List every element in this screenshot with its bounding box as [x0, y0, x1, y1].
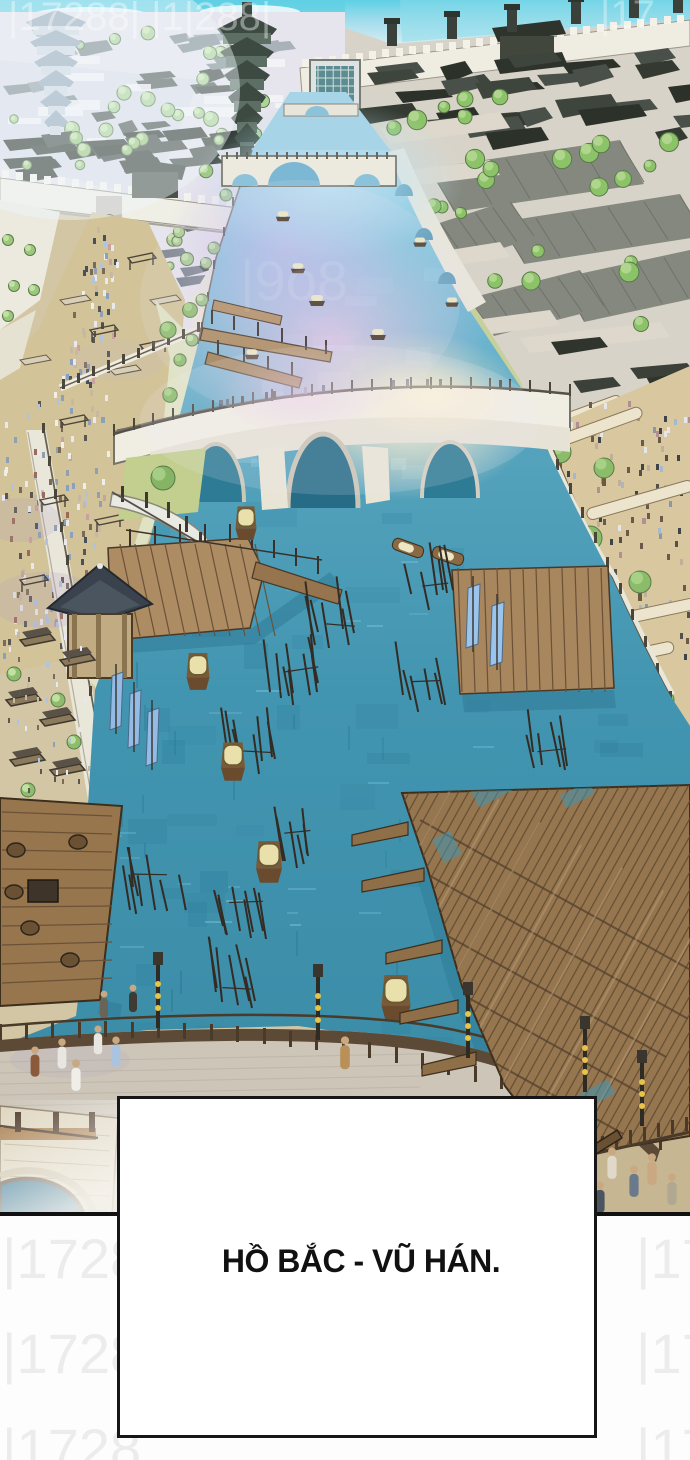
svg-text:|17288| |1|288|: |17288| |1|288| — [8, 0, 271, 39]
svg-text:|9o8: |9o8 — [240, 249, 348, 312]
svg-text:|17: |17 — [600, 0, 655, 37]
